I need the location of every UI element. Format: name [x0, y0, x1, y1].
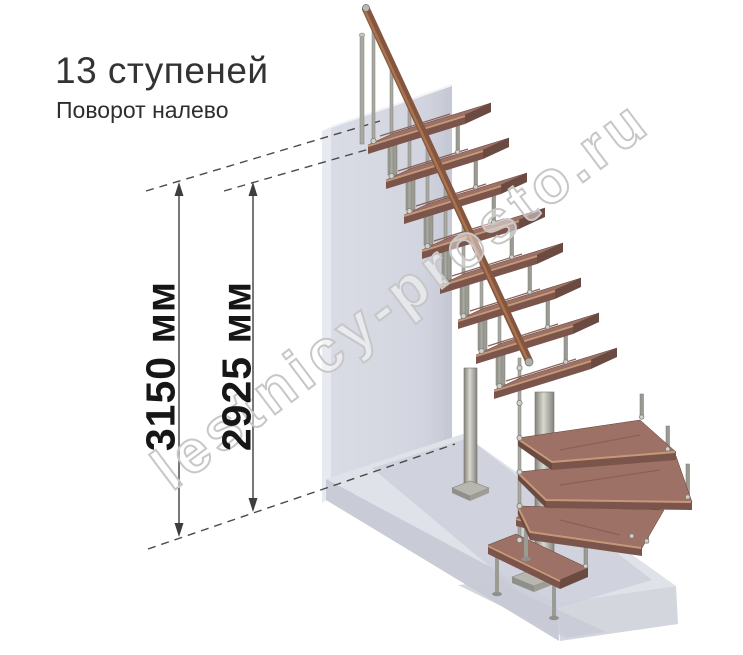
handrail-end-cap — [525, 358, 533, 366]
turn-direction-label: Поворот налево — [56, 97, 229, 124]
dimension-label-3150: 3150 мм — [138, 281, 185, 451]
tread-step-7 — [476, 313, 599, 364]
handrail-top-cap — [363, 5, 370, 12]
staircase-diagram: lestnicy-prosto.ru 13 ступеней Поворот н… — [0, 0, 743, 655]
tread-step-6 — [458, 278, 581, 329]
diagram-title: 13 ступеней — [55, 50, 269, 92]
tread-step-8 — [494, 348, 617, 399]
dimension-label-2925: 2925 мм — [214, 281, 261, 451]
top-newel-post — [360, 36, 364, 144]
